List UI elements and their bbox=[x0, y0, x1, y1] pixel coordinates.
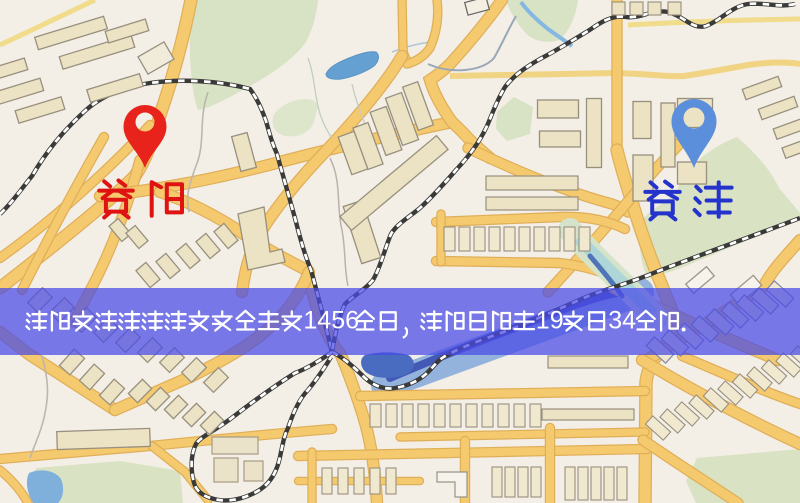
svg-text:19: 19 bbox=[536, 307, 564, 335]
svg-text:1456: 1456 bbox=[303, 307, 359, 335]
svg-text:34: 34 bbox=[608, 307, 636, 335]
